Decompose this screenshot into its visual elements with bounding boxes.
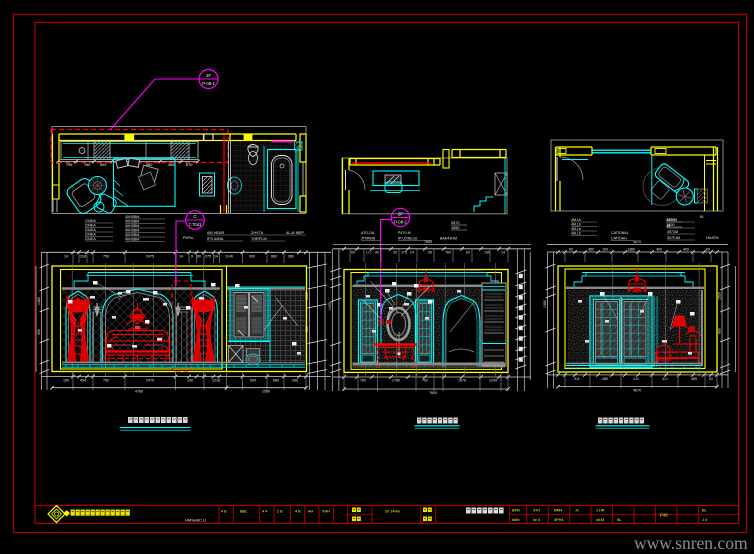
svg-text:20 14Hw: 20 14Hw — [385, 510, 400, 514]
svg-text:9: 9 — [191, 255, 193, 259]
svg-text:4670: 4670 — [633, 240, 641, 244]
svg-text:4PH4: 4PH4 — [554, 518, 564, 522]
svg-text:450: 450 — [602, 377, 608, 381]
svg-text:1650: 1650 — [451, 226, 459, 230]
svg-text:1244: 1244 — [489, 379, 497, 383]
svg-text:JTM#DB: JTM#DB — [361, 237, 376, 241]
svg-text:40HSBM: 40HSBM — [125, 238, 139, 242]
svg-text:P470-M: P470-M — [398, 231, 411, 235]
svg-text:w1M: w1M — [596, 518, 604, 522]
svg-text:1050: 1050 — [305, 292, 309, 300]
svg-text:J HR: J HR — [596, 509, 605, 513]
svg-text:4 4: 4 4 — [262, 510, 267, 514]
svg-text:HMSw8C.U: HMSw8C.U — [185, 518, 206, 523]
svg-text:B#M: B#M — [512, 509, 520, 513]
svg-text:175: 175 — [401, 251, 407, 255]
svg-text:40HSBM: 40HSBM — [125, 215, 139, 219]
svg-text:1480: 1480 — [37, 297, 41, 305]
svg-text:234EA: 234EA — [85, 219, 96, 223]
svg-text:4 B: 4 B — [295, 510, 301, 514]
svg-text:4780: 4780 — [135, 390, 143, 394]
svg-text:4971M: 4971M — [667, 230, 678, 234]
svg-text:880: 880 — [305, 326, 309, 332]
svg-text:760: 760 — [84, 163, 90, 167]
svg-text:THRPLM: THRPLM — [251, 237, 267, 241]
svg-text:1430: 1430 — [328, 302, 332, 310]
svg-text:P-08-1: P-08-1 — [202, 81, 215, 86]
svg-text:4L-M MEP: 4L-M MEP — [286, 231, 304, 235]
svg-text:2.6: 2.6 — [634, 377, 639, 381]
svg-text:150: 150 — [63, 379, 69, 383]
svg-text:190: 190 — [602, 248, 608, 252]
svg-text:4M.Lb: 4M.Lb — [571, 227, 581, 231]
svg-text:P4d: P4d — [660, 513, 668, 518]
svg-text:41: 41 — [709, 377, 713, 381]
svg-text:14: 14 — [410, 251, 414, 255]
svg-text:14: 14 — [64, 255, 68, 259]
svg-text:8.6: 8.6 — [575, 377, 580, 381]
svg-text:www.snren.com: www.snren.com — [634, 533, 748, 553]
svg-text:870: 870 — [186, 163, 192, 167]
svg-text:CATIONAL: CATIONAL — [611, 231, 629, 235]
svg-text:MT1M: MT1M — [667, 218, 677, 222]
svg-text:1380: 1380 — [627, 248, 635, 252]
svg-text:4TH: 4TH — [533, 509, 540, 513]
svg-text:P-08-2: P-08-2 — [394, 220, 407, 225]
svg-text:60: 60 — [351, 251, 355, 255]
svg-text:BL: BL — [702, 509, 707, 513]
svg-text:2475: 2475 — [146, 379, 154, 383]
svg-text:1.0: 1.0 — [366, 251, 371, 255]
svg-text:AH: AH — [308, 510, 314, 514]
svg-text:MM4: MM4 — [554, 509, 562, 513]
svg-text:60: 60 — [466, 251, 470, 255]
svg-text:150: 150 — [187, 379, 193, 383]
svg-text:275: 275 — [205, 255, 211, 259]
svg-text:1676: 1676 — [458, 379, 466, 383]
svg-text:60: 60 — [197, 255, 201, 259]
svg-text:ATO-DA: ATO-DA — [361, 231, 375, 235]
svg-text:234EA: 234EA — [85, 224, 96, 228]
svg-text:60: 60 — [706, 248, 710, 252]
svg-text:1590: 1590 — [262, 390, 270, 394]
svg-text:234EA: 234EA — [85, 237, 96, 241]
svg-text:Iw 4: Iw 4 — [533, 518, 540, 522]
svg-text:360: 360 — [168, 163, 174, 167]
svg-text:450: 450 — [691, 377, 697, 381]
svg-text:660: 660 — [271, 255, 277, 259]
svg-text:IP/LIUMA: IP/LIUMA — [207, 237, 224, 241]
svg-text:XHH: XHH — [322, 510, 330, 514]
svg-text:4M.Lb: 4M.Lb — [571, 232, 581, 236]
svg-text:600: 600 — [718, 328, 722, 334]
svg-text:1140: 1140 — [225, 255, 233, 259]
svg-text:##M: ##M — [512, 518, 519, 522]
svg-text:40HSBM: 40HSBM — [125, 220, 139, 224]
svg-text:6.0: 6.0 — [663, 377, 668, 381]
svg-text:234EA: 234EA — [85, 233, 96, 237]
svg-text:2 B: 2 B — [277, 510, 283, 514]
svg-text:760: 760 — [445, 251, 451, 255]
svg-text:J 4: J 4 — [702, 518, 707, 522]
svg-text:318: 318 — [80, 255, 86, 259]
svg-text:7600: 7600 — [429, 391, 437, 395]
svg-text:190: 190 — [484, 251, 490, 255]
svg-text:4 B: 4 B — [221, 510, 227, 514]
svg-text:750: 750 — [103, 255, 109, 259]
svg-text:30: 30 — [393, 251, 397, 255]
svg-text:400: 400 — [683, 248, 689, 252]
svg-text:40HSBM: 40HSBM — [125, 229, 139, 233]
svg-text:60: 60 — [569, 248, 573, 252]
svg-text:M: M — [667, 224, 670, 228]
svg-text:J1: J1 — [575, 509, 579, 513]
svg-text:KL: KL — [700, 215, 704, 219]
svg-text:1F: 1F — [206, 73, 212, 78]
svg-text:BBL: BBL — [240, 510, 247, 514]
svg-text:BL: BL — [617, 518, 622, 522]
svg-text:AM HEAR: AM HEAR — [207, 231, 225, 235]
svg-text:900: 900 — [37, 329, 41, 335]
svg-text:760: 760 — [360, 379, 366, 383]
svg-text:1380: 1380 — [543, 300, 547, 308]
svg-text:7.7041: 7.7041 — [189, 222, 202, 227]
svg-text:795: 795 — [66, 163, 72, 167]
svg-text:307FJM: 307FJM — [667, 236, 680, 240]
svg-text:904: 904 — [250, 379, 256, 383]
svg-text:900: 900 — [249, 255, 255, 259]
svg-text:90: 90 — [375, 251, 379, 255]
svg-text:660: 660 — [273, 379, 279, 383]
svg-text:14: 14 — [214, 255, 218, 259]
svg-text:234EA: 234EA — [85, 228, 96, 232]
svg-text:490: 490 — [656, 248, 662, 252]
svg-text:CATIOAH: CATIOAH — [611, 237, 627, 241]
svg-text:2F: 2F — [398, 212, 404, 217]
svg-text:390: 390 — [292, 379, 298, 383]
svg-text:1780: 1780 — [392, 379, 400, 383]
svg-text:14: 14 — [179, 255, 183, 259]
svg-text:1216: 1216 — [212, 379, 220, 383]
svg-text:7600: 7600 — [424, 240, 432, 244]
svg-text:2475: 2475 — [146, 255, 154, 259]
svg-text:500: 500 — [100, 163, 106, 167]
svg-text:40HSBM: 40HSBM — [125, 224, 139, 228]
svg-text:IP.I.CHB.LB: IP.I.CHB.LB — [398, 237, 418, 241]
svg-text:1520: 1520 — [718, 292, 722, 300]
svg-text:HDATM: HDATM — [706, 236, 719, 240]
svg-text:4670: 4670 — [633, 389, 641, 393]
svg-text:750: 750 — [103, 379, 109, 383]
svg-text:PHRo: PHRo — [183, 236, 193, 240]
svg-text:2870: 2870 — [451, 221, 459, 225]
svg-text:380: 380 — [288, 255, 294, 259]
svg-text:4M.Lb: 4M.Lb — [571, 223, 581, 227]
svg-text:450: 450 — [588, 248, 594, 252]
svg-text:BAD41HM: BAD41HM — [440, 237, 457, 241]
svg-text:40HSBM: 40HSBM — [125, 233, 139, 237]
svg-text:4M.Lb: 4M.Lb — [571, 218, 581, 222]
svg-text:90: 90 — [428, 251, 432, 255]
svg-text:14: 14 — [501, 251, 505, 255]
svg-text:762: 762 — [422, 379, 428, 383]
svg-text:454: 454 — [80, 379, 86, 383]
svg-text:ZHVTA: ZHVTA — [251, 231, 264, 235]
